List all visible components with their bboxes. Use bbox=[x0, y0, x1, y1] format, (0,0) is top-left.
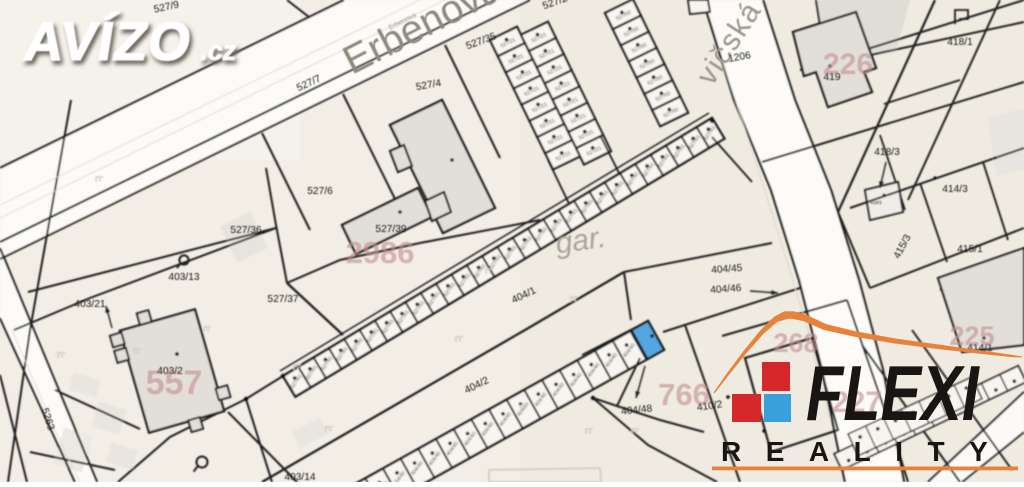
svg-text:.cz: .cz bbox=[198, 35, 239, 66]
svg-text:403/14: 403/14 bbox=[284, 472, 315, 482]
svg-text:418/2: 418/2 bbox=[870, 200, 882, 205]
svg-text:gar.: gar. bbox=[553, 221, 608, 261]
svg-text:527/6: 527/6 bbox=[307, 186, 333, 197]
svg-text:403/21: 403/21 bbox=[74, 299, 105, 310]
svg-text:AVÍZO: AVÍZO bbox=[20, 11, 197, 72]
svg-text:403/2: 403/2 bbox=[157, 366, 183, 377]
svg-text:418/3: 418/3 bbox=[874, 147, 900, 158]
svg-text:419: 419 bbox=[824, 72, 841, 83]
svg-text:415/1: 415/1 bbox=[957, 244, 983, 255]
svg-text:2986: 2986 bbox=[346, 235, 415, 270]
svg-text:404/46: 404/46 bbox=[710, 283, 742, 296]
svg-text:414/3: 414/3 bbox=[942, 184, 968, 195]
svg-text:527/37: 527/37 bbox=[267, 294, 298, 305]
svg-text:403/13: 403/13 bbox=[168, 272, 199, 283]
svg-text:418/1: 418/1 bbox=[947, 37, 973, 48]
svg-text:FLEXI: FLEXI bbox=[806, 350, 980, 437]
svg-text:404/45: 404/45 bbox=[711, 263, 743, 276]
svg-text:REALITY: REALITY bbox=[721, 436, 1012, 467]
svg-text:527/36: 527/36 bbox=[230, 225, 261, 236]
svg-text:527/39: 527/39 bbox=[375, 224, 406, 235]
